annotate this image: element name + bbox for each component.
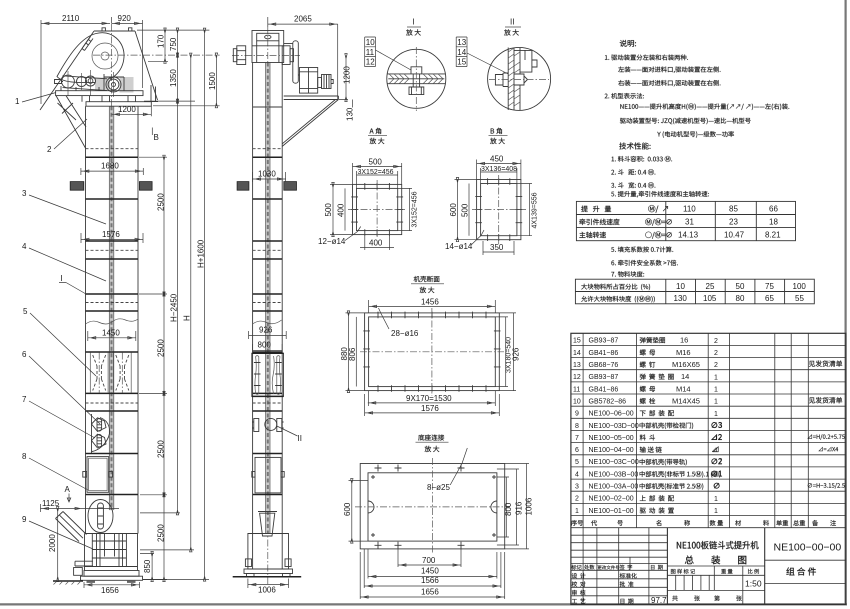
svg-text:6: 6 <box>575 447 579 454</box>
svg-text:2065: 2065 <box>294 15 312 24</box>
svg-text:1:50: 1:50 <box>745 579 762 589</box>
svg-text:800: 800 <box>504 502 513 516</box>
svg-text:7: 7 <box>22 395 27 404</box>
svg-text:18: 18 <box>769 218 778 227</box>
svg-text:1500: 1500 <box>208 72 217 90</box>
svg-text:10.47: 10.47 <box>724 231 745 240</box>
svg-text:NE100−06−00: NE100−06−00 <box>589 411 634 418</box>
svg-text:9: 9 <box>22 515 27 524</box>
svg-text:3X136=408: 3X136=408 <box>481 166 517 173</box>
svg-text:4X139=556: 4X139=556 <box>532 192 539 228</box>
svg-text:1200: 1200 <box>343 66 352 84</box>
svg-text:NE100−03C−00: NE100−03C−00 <box>589 459 639 466</box>
svg-text:2500: 2500 <box>156 339 165 357</box>
svg-text:H+1600: H+1600 <box>197 239 206 268</box>
svg-text:I: I <box>61 274 63 283</box>
svg-text:16: 16 <box>680 336 688 345</box>
svg-text:806: 806 <box>348 347 357 361</box>
svg-text:2110: 2110 <box>62 14 80 23</box>
svg-text:1450: 1450 <box>421 567 439 576</box>
svg-text:12−ø14: 12−ø14 <box>318 237 346 246</box>
svg-text:1450: 1450 <box>102 328 120 337</box>
svg-text:14: 14 <box>573 350 581 357</box>
svg-text:1030: 1030 <box>258 170 276 179</box>
svg-text:A: A <box>65 485 71 494</box>
svg-text:1456: 1456 <box>421 297 439 306</box>
svg-text:M14X45: M14X45 <box>672 397 700 406</box>
svg-text:9X170=1530: 9X170=1530 <box>406 394 452 403</box>
svg-text:1: 1 <box>714 387 718 394</box>
svg-text:28−ø16: 28−ø16 <box>391 329 419 338</box>
svg-text:10: 10 <box>366 38 375 47</box>
svg-text:500: 500 <box>369 158 383 167</box>
svg-text:130: 130 <box>674 294 688 303</box>
svg-text:3: 3 <box>575 484 579 491</box>
svg-text:II: II <box>510 18 514 27</box>
svg-text:25: 25 <box>706 282 715 291</box>
svg-text:NE100−04−00: NE100−04−00 <box>589 447 634 454</box>
svg-text:GB68−76: GB68−76 <box>589 362 619 369</box>
svg-text:500: 500 <box>461 203 470 217</box>
svg-text:3X152=456: 3X152=456 <box>412 191 419 227</box>
svg-text:GB41−86: GB41−86 <box>589 350 619 357</box>
svg-text:15: 15 <box>573 338 581 345</box>
svg-text:⊿: ⊿ <box>711 445 718 454</box>
svg-text:1656: 1656 <box>421 587 439 596</box>
svg-text:2: 2 <box>714 350 718 357</box>
svg-text:2: 2 <box>47 145 52 154</box>
svg-text:M14: M14 <box>676 385 691 394</box>
svg-text:H−2450: H−2450 <box>170 293 179 322</box>
svg-text:926: 926 <box>259 326 273 335</box>
svg-text:8−ø25: 8−ø25 <box>427 483 450 492</box>
svg-text:1576: 1576 <box>102 230 120 239</box>
svg-text:GB5782−86: GB5782−86 <box>589 398 627 405</box>
svg-text:97.7: 97.7 <box>651 596 667 605</box>
svg-text:23: 23 <box>729 218 738 227</box>
svg-text:M16X65: M16X65 <box>672 360 700 369</box>
svg-text:1006: 1006 <box>258 586 276 595</box>
svg-text:100: 100 <box>793 282 807 291</box>
svg-text:13: 13 <box>573 362 581 369</box>
svg-text:1: 1 <box>714 374 718 381</box>
svg-text:31: 31 <box>685 218 694 227</box>
svg-text:15: 15 <box>457 58 466 67</box>
svg-text:80: 80 <box>736 294 745 303</box>
svg-text:3: 3 <box>22 189 27 198</box>
svg-text:2: 2 <box>575 496 579 503</box>
svg-text:B: B <box>154 133 159 142</box>
svg-text:105: 105 <box>703 294 717 303</box>
svg-text:66: 66 <box>769 205 778 214</box>
svg-text:2500: 2500 <box>156 193 165 211</box>
svg-text:85: 85 <box>729 205 738 214</box>
svg-text:14.13: 14.13 <box>678 231 699 240</box>
svg-text:10: 10 <box>573 398 581 405</box>
svg-text:9: 9 <box>575 411 579 418</box>
svg-text:2: 2 <box>714 362 718 369</box>
svg-text:700: 700 <box>422 556 436 565</box>
svg-text:2500: 2500 <box>156 524 165 542</box>
svg-text:800: 800 <box>258 341 272 350</box>
svg-text:5: 5 <box>575 459 579 466</box>
svg-text:NE100−02−00: NE100−02−00 <box>589 496 634 503</box>
svg-text:14: 14 <box>681 372 689 381</box>
svg-text:1566: 1566 <box>421 576 439 585</box>
svg-text:M16: M16 <box>676 348 691 357</box>
svg-text:350: 350 <box>490 243 504 252</box>
svg-text:10: 10 <box>676 282 685 291</box>
svg-text:1200: 1200 <box>118 105 136 114</box>
svg-text:1: 1 <box>714 496 718 503</box>
svg-text:GB93−87: GB93−87 <box>589 374 619 381</box>
svg-text:12: 12 <box>366 58 375 67</box>
svg-text:NE100−03A−00: NE100−03A−00 <box>589 484 639 491</box>
svg-text:7: 7 <box>575 435 579 442</box>
svg-text:2: 2 <box>714 338 718 345</box>
svg-text:1680: 1680 <box>101 162 119 171</box>
svg-text:8.21: 8.21 <box>765 231 781 240</box>
svg-text:11: 11 <box>366 48 375 57</box>
svg-text:450: 450 <box>490 155 504 164</box>
svg-text:II: II <box>298 434 302 443</box>
svg-text:916: 916 <box>514 501 523 515</box>
svg-text:600: 600 <box>449 203 458 217</box>
svg-text:6: 6 <box>22 350 27 359</box>
svg-text:920: 920 <box>118 14 132 23</box>
svg-text:500: 500 <box>324 203 333 217</box>
svg-text:8: 8 <box>575 423 579 430</box>
svg-text:1656: 1656 <box>101 586 119 595</box>
svg-text:GB41−86: GB41−86 <box>589 386 619 393</box>
svg-text:1006: 1006 <box>524 497 533 515</box>
svg-text:850: 850 <box>143 559 152 573</box>
svg-text:NE100−03B−00: NE100−03B−00 <box>589 471 639 478</box>
svg-text:1: 1 <box>714 411 718 418</box>
svg-text:H: H <box>183 315 192 321</box>
svg-text:1576: 1576 <box>421 404 439 413</box>
svg-text:4: 4 <box>575 471 579 478</box>
svg-text:400: 400 <box>369 239 383 248</box>
svg-text:14: 14 <box>457 48 466 57</box>
svg-text:1: 1 <box>714 399 718 406</box>
svg-text:55: 55 <box>795 294 804 303</box>
svg-text:4: 4 <box>22 242 27 251</box>
svg-text:1: 1 <box>575 508 579 515</box>
svg-text:75: 75 <box>765 282 774 291</box>
svg-text:926: 926 <box>512 347 521 361</box>
svg-text:110: 110 <box>683 205 696 214</box>
svg-text:NE100−03D−00: NE100−03D−00 <box>589 423 639 430</box>
svg-text:NE100−01−00: NE100−01−00 <box>589 508 634 515</box>
svg-text:600: 600 <box>343 502 352 516</box>
svg-text:8: 8 <box>22 452 27 461</box>
svg-text:1: 1 <box>714 508 718 515</box>
svg-text:GB93−87: GB93−87 <box>589 338 619 345</box>
svg-text:NE100−05−00: NE100−05−00 <box>589 435 634 442</box>
svg-text:I: I <box>413 18 415 27</box>
svg-text:400: 400 <box>337 203 346 217</box>
svg-text:NE100−00−00: NE100−00−00 <box>774 542 842 554</box>
svg-text:1: 1 <box>15 97 20 106</box>
svg-text:5: 5 <box>23 307 28 316</box>
svg-text:750: 750 <box>169 37 178 51</box>
svg-text:170: 170 <box>157 34 166 48</box>
svg-text:11: 11 <box>573 386 580 393</box>
svg-text:1350: 1350 <box>169 69 178 87</box>
svg-text:50: 50 <box>736 282 745 291</box>
svg-text:14−ø14: 14−ø14 <box>445 242 473 251</box>
svg-text:13: 13 <box>457 38 466 47</box>
svg-text:65: 65 <box>765 294 774 303</box>
svg-text:2500: 2500 <box>156 440 165 458</box>
svg-text:130: 130 <box>346 107 355 121</box>
svg-text:2000: 2000 <box>48 534 57 552</box>
svg-text:12: 12 <box>573 374 581 381</box>
svg-text:3X152=456: 3X152=456 <box>358 169 394 176</box>
